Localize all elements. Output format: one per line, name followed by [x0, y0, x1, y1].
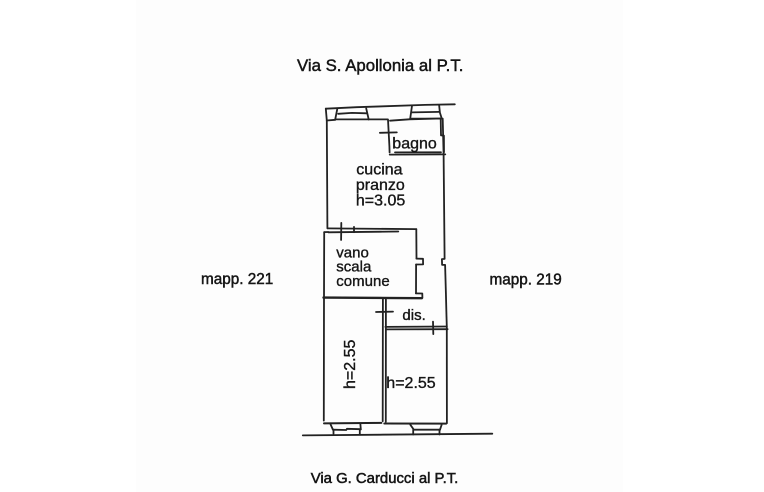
svg-text:Via S. Apollonia al P.T.: Via S. Apollonia al P.T.	[297, 56, 463, 75]
svg-text:mapp. 219: mapp. 219	[490, 271, 562, 288]
svg-text:Via G. Carducci al P.T.: Via G. Carducci al P.T.	[311, 471, 459, 487]
svg-text:dis.: dis.	[402, 307, 425, 324]
svg-text:bagno: bagno	[392, 136, 437, 153]
svg-text:h=2.55: h=2.55	[386, 375, 435, 392]
svg-text:h=3.05: h=3.05	[356, 193, 405, 210]
svg-text:pranzo: pranzo	[356, 177, 405, 194]
svg-text:h=2.55: h=2.55	[342, 340, 359, 389]
svg-text:mapp. 221: mapp. 221	[201, 271, 273, 288]
svg-text:comune: comune	[336, 273, 389, 290]
